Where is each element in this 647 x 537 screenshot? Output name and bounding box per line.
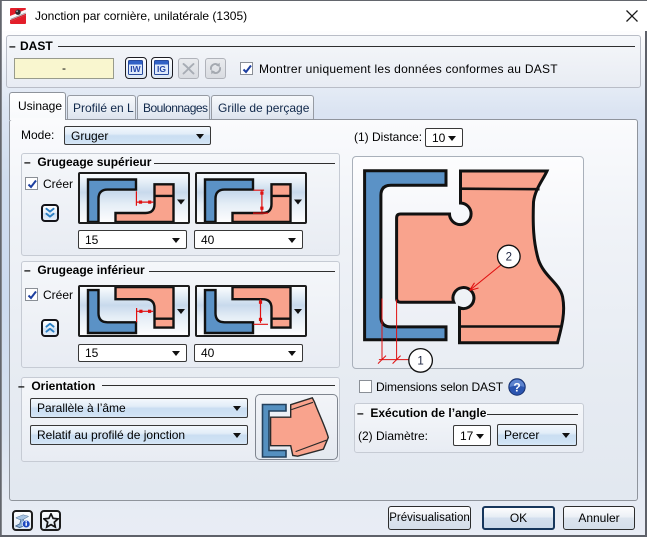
svg-text:2: 2 [506,252,512,264]
svg-text:1: 1 [417,356,423,368]
svg-text:IW: IW [130,64,141,74]
svg-text:IG: IG [157,64,166,74]
svg-text:?: ? [513,380,520,394]
